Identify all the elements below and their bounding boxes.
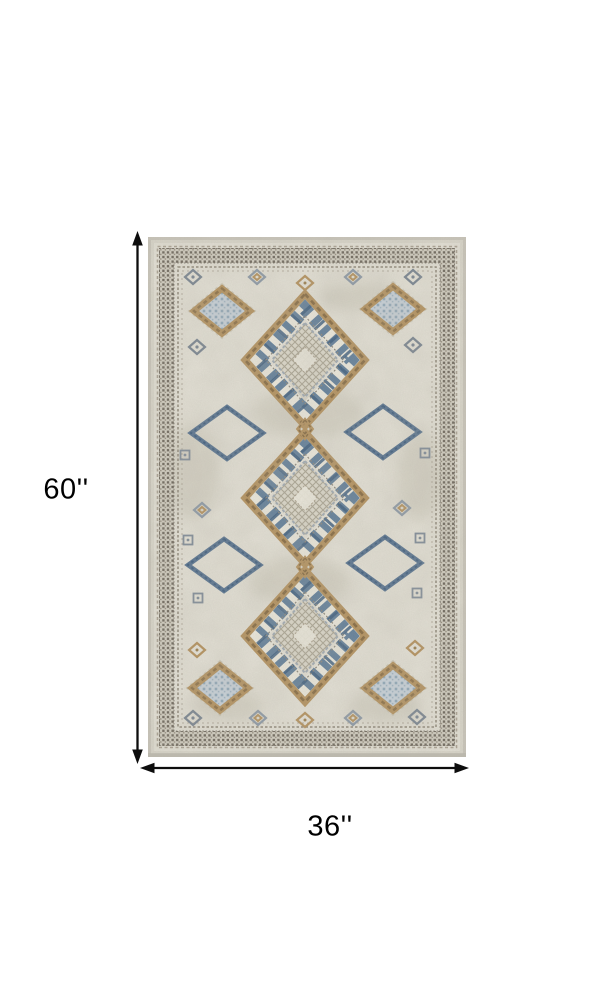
rug-pattern-svg	[148, 237, 466, 757]
arrow-down-head	[132, 750, 143, 765]
product-dimension-image: 60'' 36''	[0, 0, 612, 1000]
height-label: 60''	[43, 476, 88, 505]
rug-pile-edge	[148, 753, 466, 757]
arrow-right-head	[455, 763, 470, 774]
width-label: 36''	[307, 813, 352, 842]
width-arrow	[140, 763, 469, 774]
arrow-left-head	[140, 763, 155, 774]
rug-image	[148, 237, 466, 757]
fabric-grain	[148, 237, 466, 757]
arrow-up-head	[132, 231, 143, 246]
height-arrow	[132, 231, 143, 764]
